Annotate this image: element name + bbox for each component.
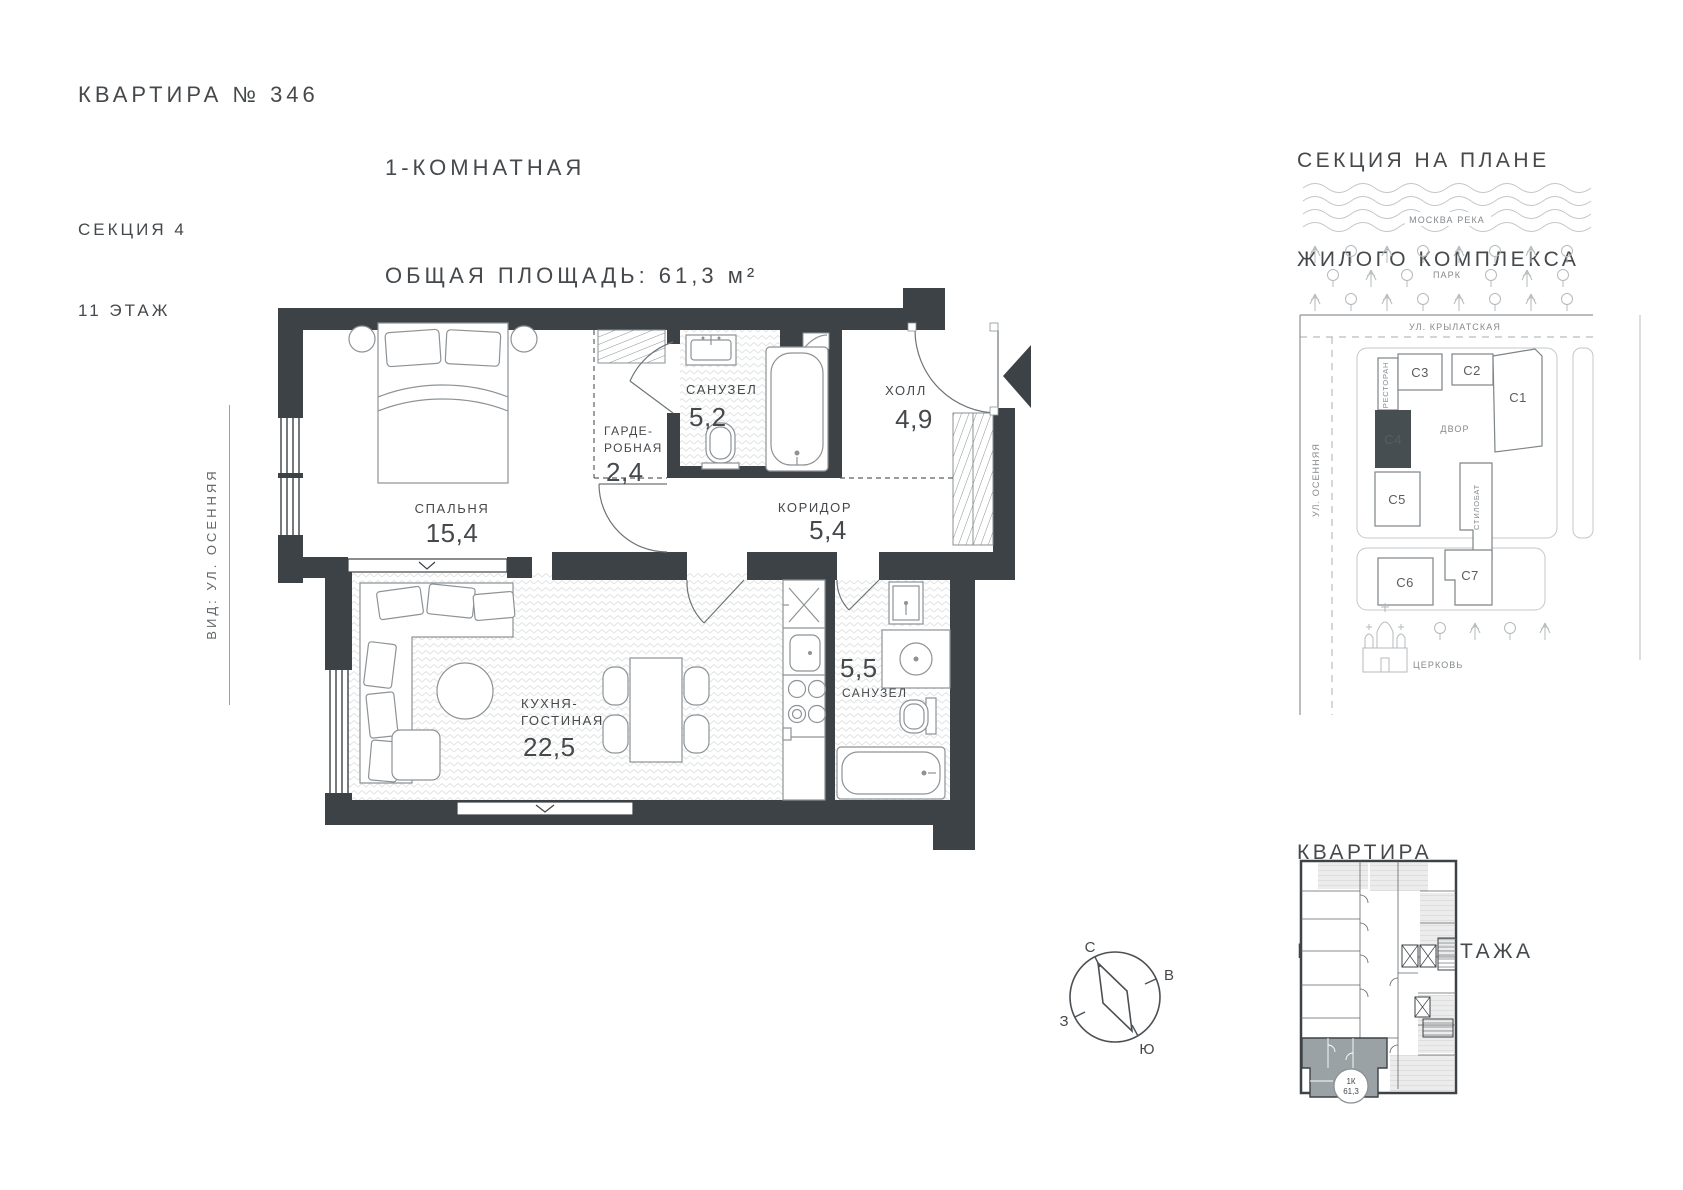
- wardrobe-label-1: ГАРДЕ-: [604, 424, 653, 438]
- restaurant-label: РЕСТОРАН: [1381, 362, 1390, 409]
- wardrobe-area: 2,4: [606, 457, 644, 487]
- kitchen-strip: [783, 580, 826, 800]
- toilet-bottom: [900, 698, 936, 734]
- kitchen-sink-icon: [790, 635, 820, 671]
- compass-ticks: [1075, 957, 1156, 1036]
- section-label: СЕКЦИЯ 4: [78, 216, 187, 243]
- floorplan-sheet: { "header": { "apartment": "КВАРТИРА № 3…: [0, 0, 1683, 1190]
- kitchen-label-1: КУХНЯ-: [521, 696, 578, 711]
- coffee-table: [437, 663, 493, 719]
- courtyard-label: ДВОР: [1440, 424, 1469, 434]
- stylobate-label: СТИЛОБАТ: [1472, 484, 1481, 530]
- kitchen-window: [330, 670, 348, 793]
- compass-south: Ю: [1139, 1041, 1154, 1058]
- section-floor: СЕКЦИЯ 4 11 ЭТАЖ: [78, 162, 187, 351]
- page-title: КВАРТИРА № 346: [78, 82, 319, 108]
- bathroom-bottom-label: САНУЗЕЛ: [842, 686, 907, 700]
- view-divider-line: [229, 405, 230, 705]
- compass-needle-icon: [1098, 963, 1132, 1031]
- site-buildings: [1375, 349, 1542, 605]
- street-left-label: УЛ. ОСЕННЯЯ: [1311, 443, 1321, 517]
- street-top-label: УЛ. КРЫЛАТСКАЯ: [1409, 322, 1501, 332]
- entrance-arrow-icon: [1003, 345, 1031, 408]
- highlighted-unit: 1К 61,3: [1302, 1038, 1387, 1103]
- label-c1: С1: [1509, 390, 1527, 405]
- floor-overview-plan: 1К 61,3: [1298, 853, 1464, 1109]
- corridor-label: КОРИДОР: [778, 500, 852, 515]
- bathroom-top-label: САНУЗЕЛ: [686, 382, 757, 397]
- main-floor-plan: СПАЛЬНЯ 15,4 ГАРДЕ- РОБНАЯ 2,4 САНУЗЕЛ 5…: [278, 285, 1048, 865]
- bed: [378, 323, 508, 483]
- sink-bottom: [889, 582, 923, 624]
- river-label: МОСКВА РЕКА: [1409, 215, 1485, 225]
- compass-west: З: [1059, 1013, 1068, 1030]
- bathroom-bottom-area: 5,5: [840, 653, 878, 683]
- compass-rose: С В З Ю: [1040, 930, 1200, 1090]
- church-label: ЦЕРКОВЬ: [1413, 660, 1463, 670]
- church-icon: [1363, 603, 1407, 672]
- bottom-trees: [1435, 623, 1551, 641]
- sink-top: [686, 335, 736, 365]
- unit-badge-area: 61,3: [1343, 1087, 1359, 1096]
- label-c4: С4: [1384, 432, 1402, 447]
- wardrobe-label-2: РОБНАЯ: [604, 441, 663, 455]
- apartment-type: 1-КОМНАТНАЯ: [385, 150, 758, 186]
- label-c3: С3: [1411, 365, 1429, 380]
- hall-label: ХОЛЛ: [885, 383, 927, 398]
- label-c2: С2: [1463, 363, 1481, 378]
- bathtub-top: [766, 347, 828, 471]
- bathtub-bottom: [837, 747, 945, 799]
- compass-east: В: [1164, 967, 1174, 984]
- kitchen-label-2: ГОСТИНАЯ: [521, 713, 604, 728]
- washing-machine: [882, 630, 950, 688]
- label-c5: С5: [1388, 492, 1406, 507]
- unit-badge-type: 1К: [1346, 1077, 1355, 1086]
- corridor-area: 5,4: [809, 515, 847, 545]
- site-plan-map: МОСКВА РЕКА ПАРК УЛ. КРЫЛАТСКАЯ УЛ. ОСЕН…: [1295, 160, 1683, 720]
- bathroom-top-area: 5,2: [689, 402, 727, 432]
- kitchen-area: 22,5: [523, 732, 576, 762]
- street-view-label: ВИД: УЛ. ОСЕННЯЯ: [204, 404, 222, 704]
- unit-badge: [1334, 1069, 1368, 1103]
- park-label: ПАРК: [1433, 270, 1461, 280]
- floor-label: 11 ЭТАЖ: [78, 297, 187, 324]
- label-c7: С7: [1461, 568, 1479, 583]
- bedroom-label: СПАЛЬНЯ: [415, 501, 490, 516]
- label-c6: С6: [1396, 575, 1414, 590]
- compass-north: С: [1085, 939, 1096, 956]
- hall-area: 4,9: [895, 404, 933, 434]
- bedroom-area: 15,4: [426, 518, 479, 548]
